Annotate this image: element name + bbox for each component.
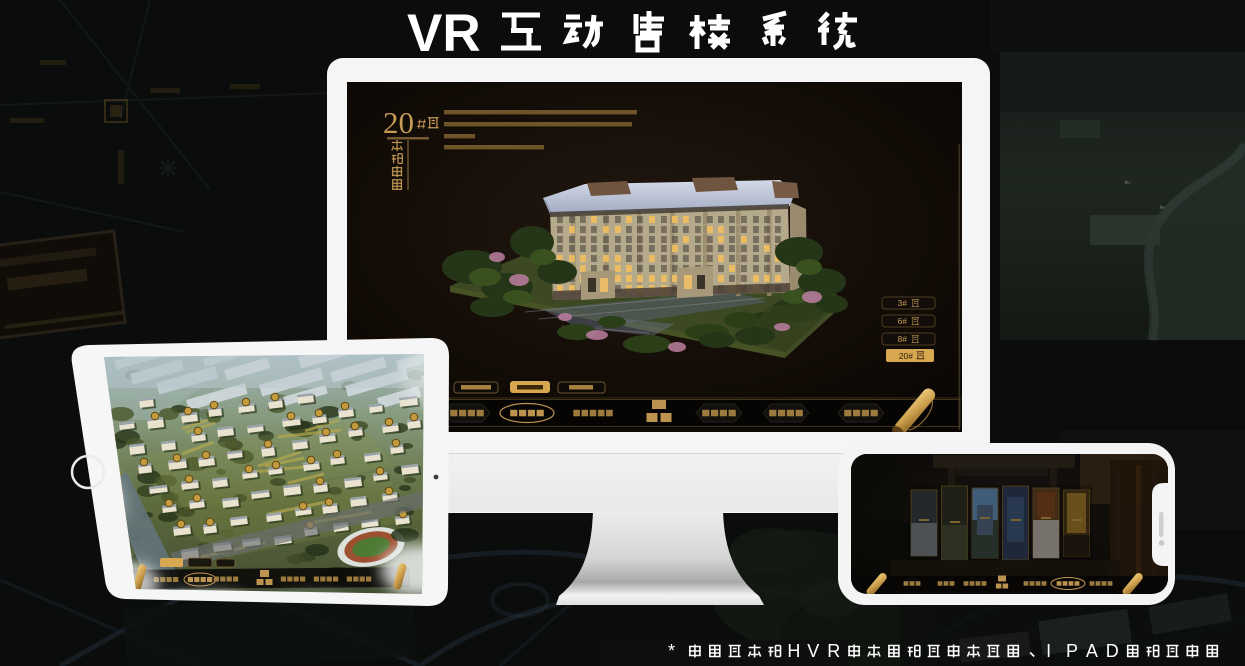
svg-text:20#: 20# (899, 351, 913, 361)
svg-text:6#: 6# (898, 316, 908, 326)
svg-text:I: I (1046, 641, 1051, 661)
svg-text:3#: 3# (898, 298, 908, 308)
svg-text:H: H (787, 641, 800, 661)
svg-text:A: A (1086, 641, 1098, 661)
svg-text:20: 20 (383, 105, 414, 140)
svg-text:R: R (827, 641, 840, 661)
svg-text:*: * (668, 641, 675, 661)
svg-text:P: P (1066, 641, 1078, 661)
svg-text:D: D (1106, 641, 1119, 661)
svg-text:VR: VR (407, 4, 481, 60)
svg-text:V: V (807, 641, 819, 661)
svg-text:8#: 8# (898, 334, 908, 344)
